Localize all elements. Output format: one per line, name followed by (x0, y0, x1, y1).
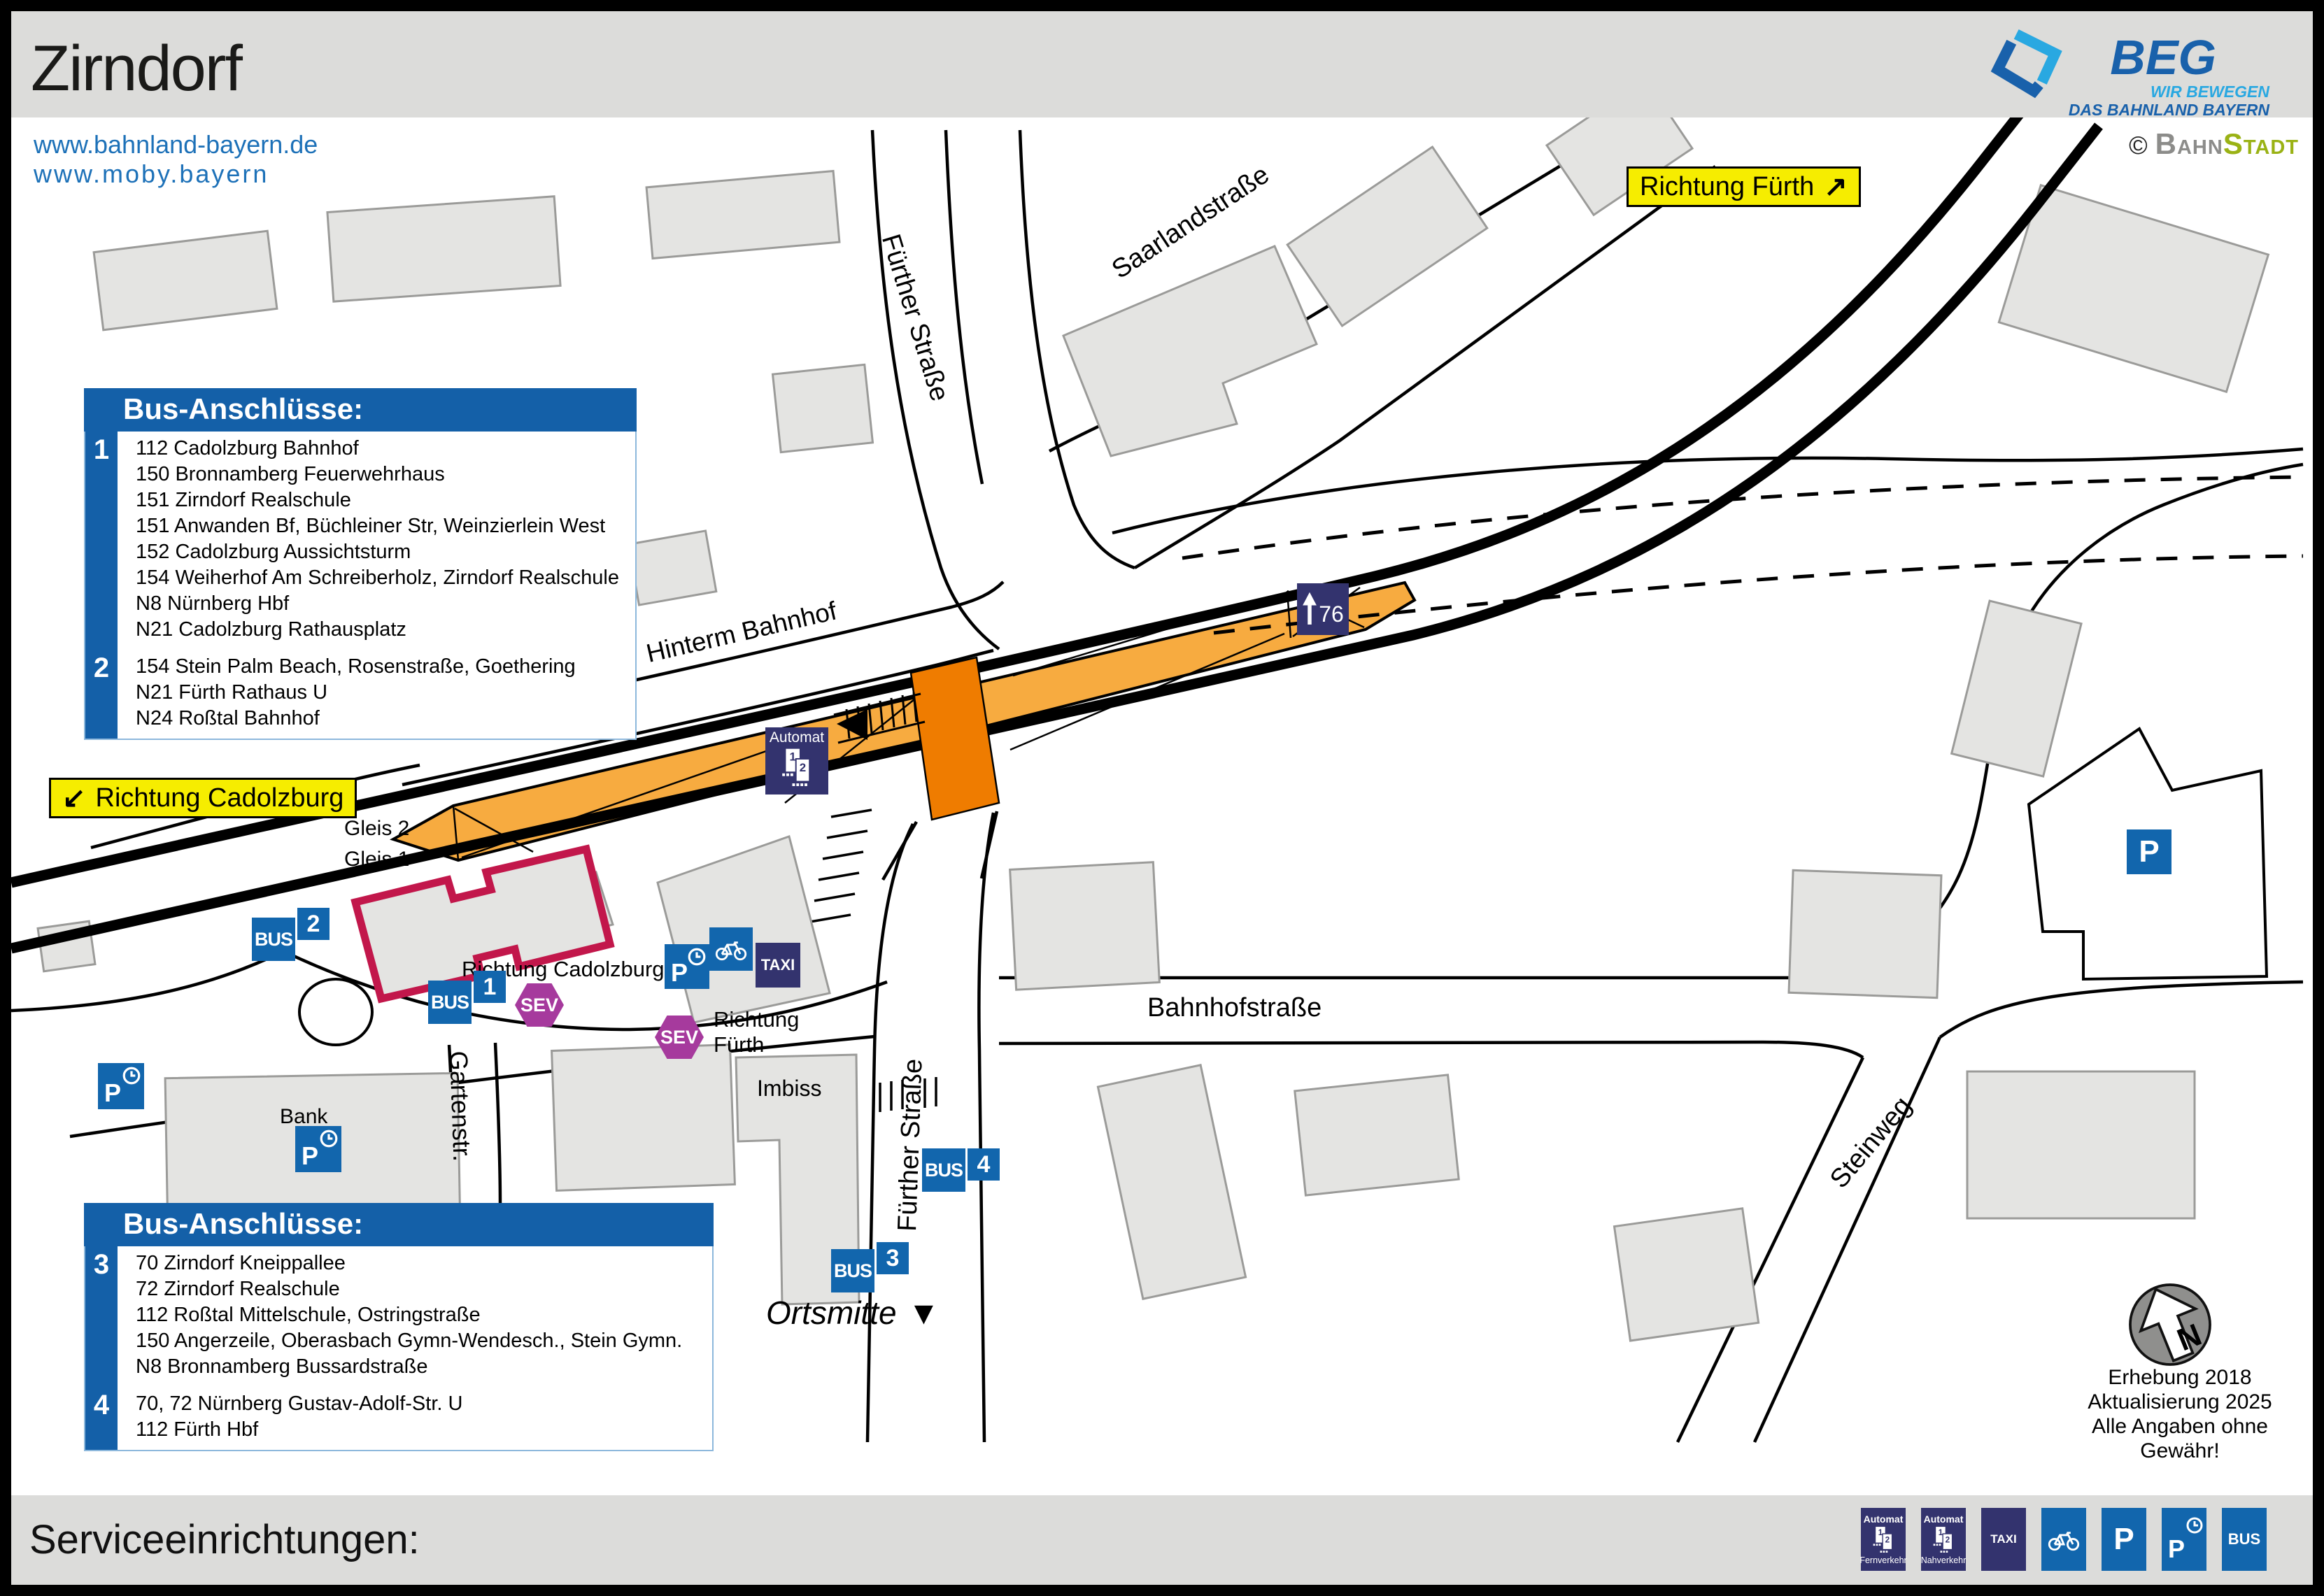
direction-sign-fuerth-label: Richtung Fürth (1640, 172, 1814, 202)
bus-line: 70, 72 Nürnberg Gustav-Adolf-Str. U (136, 1391, 700, 1417)
survey-note: Erhebung 2018 Aktualisierung 2025 Alle A… (2057, 1365, 2303, 1463)
bus-line: N21 Cadolzburg Rathausplatz (136, 617, 623, 643)
svg-text:1: 1 (789, 750, 795, 764)
parking-letter: P (104, 1078, 121, 1108)
taxi-stand-icon: TAXI (756, 943, 800, 988)
clock-icon (2185, 1516, 2204, 1534)
stop-number-badge: 2 (85, 650, 118, 739)
bus-line: N24 Roßtal Bahnhof (136, 706, 623, 732)
bus-stop-4-icon: BUS 4 (922, 1148, 1000, 1192)
beg-wordmark: BEG (2110, 29, 2216, 85)
direction-sign-cadolzburg: ↙ Richtung Cadolzburg (49, 778, 357, 818)
stop-number-badge: 1 (85, 432, 118, 650)
parking-clock-icon: P (665, 944, 709, 989)
bus-box1-title: Bus-Anschlüsse: (84, 388, 637, 432)
bus-icon: BUS (922, 1148, 965, 1192)
bus-line: 72 Zirndorf Realschule (136, 1276, 700, 1302)
bus-line: 112 Cadolzburg Bahnhof (136, 436, 623, 462)
track-kilometre-sign: 76 (1297, 583, 1349, 635)
parking-letter: P (2168, 1534, 2185, 1564)
copyright-symbol: © (2129, 131, 2148, 159)
bus-line: 150 Bronnamberg Feuerwehrhaus (136, 462, 623, 487)
arrow-up-right-icon: ↗ (1824, 171, 1848, 203)
parking-icon: P (2127, 829, 2171, 874)
arrow-down-left-icon: ↙ (62, 782, 86, 814)
bus-line: 150 Angerzeile, Oberasbach Gymn-Wendesch… (136, 1328, 700, 1354)
bus-stop-group-2: 2 154 Stein Palm Beach, Rosenstraße, Goe… (85, 650, 635, 739)
stop-2-number: 2 (297, 908, 330, 940)
note-richtung-fuerth: Richtung Fürth (714, 1007, 799, 1057)
bicycle-icon (714, 938, 748, 961)
bus-line: N8 Nürnberg Hbf (136, 591, 623, 617)
link-moby-bayern[interactable]: www.moby.bayern (34, 159, 318, 189)
bus-line: N21 Fürth Rathaus U (136, 680, 623, 706)
clock-icon (319, 1129, 339, 1148)
parking-clock-icon: P (98, 1063, 144, 1109)
bus-stop-group-3: 3 70 Zirndorf Kneippallee 72 Zirndorf Re… (85, 1246, 712, 1387)
parking-clock-icon: P (295, 1126, 341, 1172)
credit-stadt: Stadt (2223, 127, 2299, 160)
clock-icon (122, 1066, 141, 1085)
crossing-edges (883, 811, 997, 880)
direction-sign-fuerth: Richtung Fürth ↗ (1627, 166, 1861, 207)
poi-imbiss: Imbiss (757, 1076, 821, 1102)
note-richtung-fuerth-line1: Richtung (714, 1007, 799, 1032)
poi-bank: Bank (280, 1105, 327, 1129)
service-legend: Automat 1 2 Fernverkehr Automat 1 2 Nahv… (1861, 1508, 2267, 1571)
bus-line: 154 Stein Palm Beach, Rosenstraße, Goeth… (136, 654, 623, 680)
bus-line: 112 Roßtal Mittelschule, Ostringstraße (136, 1302, 700, 1328)
legend-label: Automat (1924, 1513, 1964, 1525)
stop-3-number: 3 (877, 1242, 909, 1274)
clock-icon (687, 947, 707, 967)
track-sign-number: 76 (1319, 601, 1344, 627)
bus-icon: BUS (428, 981, 472, 1024)
website-links: www.bahnland-bayern.de www.moby.bayern (34, 130, 318, 189)
direction-sign-cadolzburg-label: Richtung Cadolzburg (96, 783, 344, 813)
station-map-page: Zirndorf BEG WIR BEWEGEN DAS BAHNLAND BA… (0, 0, 2324, 1596)
compass-north-icon: N (2127, 1281, 2213, 1368)
bus-icon: BUS (831, 1249, 874, 1292)
triangle-down-icon: ▼ (908, 1294, 940, 1332)
street-bahnhofstrasse: Bahnhofstraße (1147, 993, 1322, 1023)
legend-bus-icon: BUS (2222, 1508, 2267, 1571)
stop-number-badge: 3 (85, 1246, 118, 1387)
bus-line: 151 Zirndorf Realschule (136, 487, 623, 513)
legend-sublabel: Fernverkehr (1859, 1555, 1906, 1565)
bicycle-parking-icon (709, 927, 753, 971)
ortsmitte-label: Ortsmitte (766, 1294, 897, 1332)
bus-stop-2-icon: BUS 2 (252, 918, 330, 961)
bus-icon: BUS (252, 918, 295, 961)
link-bahnland-bayern[interactable]: www.bahnland-bayern.de (34, 130, 318, 159)
parking-letter: P (302, 1141, 318, 1171)
legend-taxi-icon: TAXI (1981, 1508, 2026, 1571)
legend-parking-icon: P (2102, 1508, 2146, 1571)
svg-text:2: 2 (1885, 1536, 1890, 1545)
legend-automat-nahverkehr-icon: Automat 1 2 Nahverkehr (1921, 1508, 1966, 1571)
ticket-machine-glyph-icon: 1 2 (1931, 1525, 1956, 1555)
street-gartenstrasse: Gartenstr. (444, 1050, 476, 1162)
stop-1-number: 1 (474, 971, 506, 1003)
legend-automat-fernverkehr-icon: Automat 1 2 Fernverkehr (1861, 1508, 1906, 1571)
ticket-machine-glyph-icon: 1 2 (1871, 1525, 1896, 1555)
bus-line: 154 Weiherhof Am Schreiberholz, Zirndorf… (136, 565, 623, 591)
svg-text:2: 2 (800, 761, 806, 774)
bus-connections-box-1: Bus-Anschlüsse: 1 112 Cadolzburg Bahnhof… (84, 388, 637, 740)
bus-line: N8 Bronnamberg Bussardstraße (136, 1354, 700, 1380)
beg-tagline-1: WIR BEWEGEN (2151, 83, 2269, 101)
stop-4-number: 4 (968, 1148, 1000, 1181)
bus-connections-box-2: Bus-Anschlüsse: 3 70 Zirndorf Kneippalle… (84, 1203, 714, 1451)
ticket-machine-icon: Automat 1 2 (765, 727, 828, 795)
bicycle-icon (2047, 1528, 2081, 1551)
note-richtung-fuerth-line2: Fürth (714, 1032, 799, 1057)
bus-stop-group-1: 1 112 Cadolzburg Bahnhof 150 Bronnamberg… (85, 432, 635, 650)
automat-label: Automat (770, 729, 824, 746)
track-label-gleis1: Gleis 1 (344, 848, 409, 871)
bus-line: 112 Fürth Hbf (136, 1417, 700, 1443)
svg-text:2: 2 (1946, 1536, 1950, 1545)
bus-line: 151 Anwanden Bf, Büchleiner Str, Weinzie… (136, 513, 623, 539)
footer-bar: Serviceeinrichtungen: Automat 1 2 Fernve… (11, 1495, 2313, 1585)
header-bar: Zirndorf BEG WIR BEWEGEN DAS BAHNLAND BA… (11, 11, 2313, 117)
ortsmitte-pointer: Ortsmitte ▼ (766, 1294, 940, 1332)
beg-tagline-2: DAS BAHNLAND BAYERN (2069, 101, 2269, 120)
legend-sublabel: Nahverkehr (1921, 1555, 1967, 1565)
street-fuerther-strasse-bottom: Fürther Straße (893, 1058, 929, 1232)
arrow-up-icon (1302, 591, 1317, 627)
legend-label: Automat (1864, 1513, 1904, 1525)
bus-stop-3-icon: BUS 3 (831, 1249, 909, 1292)
bus-stop-group-4: 4 70, 72 Nürnberg Gustav-Adolf-Str. U 11… (85, 1387, 712, 1450)
bus-box2-title: Bus-Anschlüsse: (84, 1203, 714, 1246)
page-title: Zirndorf (31, 32, 241, 106)
legend-bicycle-icon (2041, 1508, 2086, 1571)
ticket-machine-glyph-icon: 1 2 (779, 746, 815, 790)
service-facilities-title: Serviceeinrichtungen: (29, 1516, 420, 1563)
credit-bahn: Bahn (2155, 127, 2223, 160)
copyright-credit: ©BahnStadt (2085, 127, 2299, 161)
track-label-gleis2: Gleis 2 (344, 817, 409, 841)
legend-parking-clock-icon: P (2162, 1508, 2206, 1571)
stop-number-badge: 4 (85, 1387, 118, 1450)
bus-stop-1-icon: BUS 1 (428, 981, 506, 1024)
bus-line: 70 Zirndorf Kneippallee (136, 1251, 700, 1276)
survey-line2: Aktualisierung 2025 (2057, 1390, 2303, 1414)
survey-line1: Erhebung 2018 (2057, 1365, 2303, 1390)
beg-logo-icon (1985, 21, 2068, 104)
bus-line: 152 Cadolzburg Aussichtsturm (136, 539, 623, 565)
parking-letter: P (671, 958, 688, 988)
survey-line3: Alle Angaben ohne Gewähr! (2057, 1414, 2303, 1463)
roundabout (299, 979, 372, 1045)
